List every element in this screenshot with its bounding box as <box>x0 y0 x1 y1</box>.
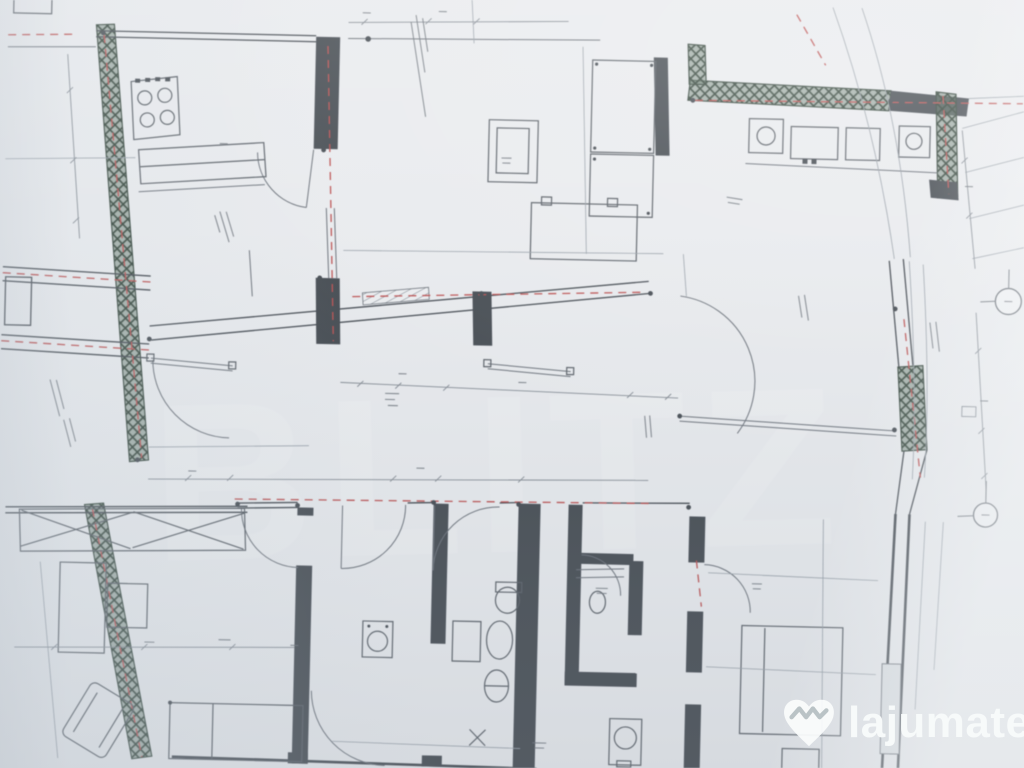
stove-icon <box>130 76 181 141</box>
site-watermark: lajumate.ro <box>780 694 1024 752</box>
brand-name: lajumate <box>848 698 1024 747</box>
boiler-icon <box>609 719 642 768</box>
bed <box>169 703 303 762</box>
watermark-brand-text: lajumate.ro <box>848 701 1024 745</box>
background-watermark-text: BLITZ <box>147 339 851 609</box>
double-wardrobe <box>589 60 656 217</box>
floor-drain-icon <box>469 729 485 745</box>
handshake-heart-icon <box>780 694 838 752</box>
shaft-column <box>488 120 538 183</box>
washing-machine-icon <box>362 621 393 658</box>
axis-marker-lower <box>957 480 998 527</box>
floor-plan-drawing: BLITZ <box>0 0 1024 768</box>
sink-counter-top-right <box>745 119 938 173</box>
top-left-cabinet <box>8 0 97 49</box>
bidet-icon <box>484 670 509 703</box>
table <box>530 197 637 261</box>
floor-plan-photo: BLITZ <box>0 0 1024 768</box>
axis-marker-upper <box>980 269 1022 315</box>
kitchen-counter <box>138 140 267 195</box>
pedestal-sink-icon <box>452 620 513 662</box>
